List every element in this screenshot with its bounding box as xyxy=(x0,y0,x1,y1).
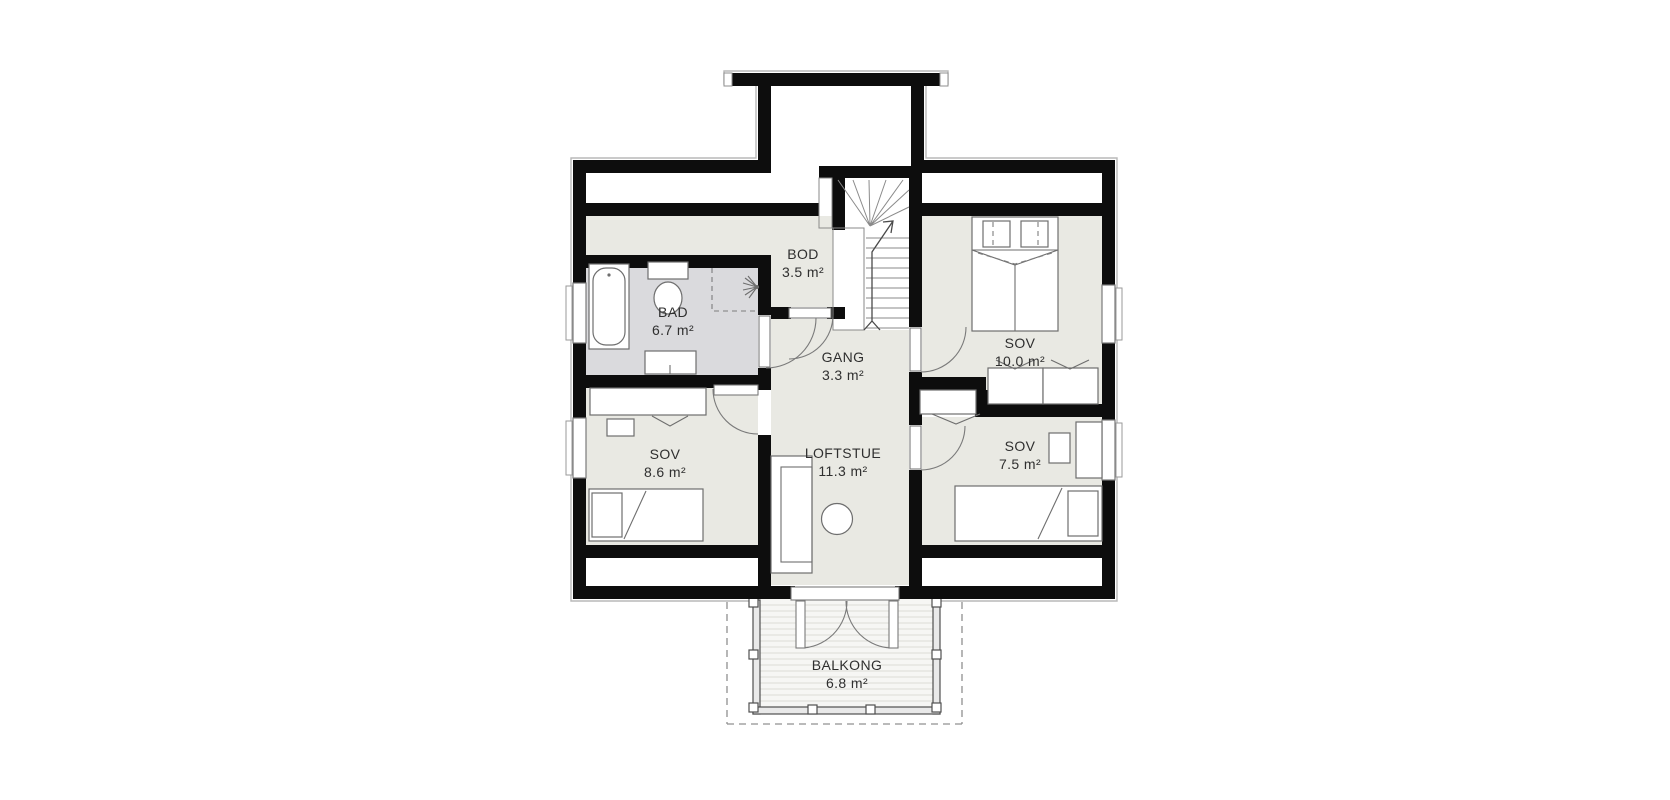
room-area: 11.3 m² xyxy=(818,463,867,479)
balcony-deck xyxy=(760,599,933,709)
round-table xyxy=(822,504,853,535)
wall-dormer-top xyxy=(724,73,948,86)
floor-plan-canvas: BAD 6.7 m² BOD 3.5 m² GANG 3.3 m² SOV 10… xyxy=(0,0,1670,800)
room-area: 6.7 m² xyxy=(652,322,694,338)
wall-bottom-right xyxy=(895,586,1115,599)
room-area: 8.6 m² xyxy=(644,464,686,480)
knee-wall-bottom-left xyxy=(586,545,758,558)
wall-bod-south xyxy=(771,307,791,319)
knee-wall-top-left xyxy=(586,203,819,216)
wall-dormer-right xyxy=(911,86,924,166)
knee-wall-top-right xyxy=(922,203,1102,216)
wall-west-corridor xyxy=(758,368,771,390)
wall-closet-north xyxy=(920,377,986,390)
room-area: 10.0 m² xyxy=(995,353,1045,369)
room-name: SOV xyxy=(1005,335,1036,351)
chair xyxy=(1049,433,1070,463)
window-sov-7-5 xyxy=(1102,420,1115,480)
wall-stair-top xyxy=(819,166,922,178)
wall-left xyxy=(573,343,586,418)
desk xyxy=(1076,422,1102,478)
door-leaf-bod xyxy=(789,308,831,318)
room-area: 6.8 m² xyxy=(826,675,868,691)
room-name: BOD xyxy=(787,246,819,262)
toilet-cistern xyxy=(648,262,688,279)
door-leaf-sov-10 xyxy=(910,328,921,371)
room-area: 3.3 m² xyxy=(822,367,864,383)
wall-right xyxy=(1102,480,1115,599)
bed-pillow xyxy=(983,221,1010,247)
room-name: BAD xyxy=(658,304,688,320)
window-sov-8-6 xyxy=(573,418,586,478)
wardrobe xyxy=(988,368,1043,404)
wall-right xyxy=(1102,160,1115,285)
bathtub-drain xyxy=(607,273,610,276)
wall-end-cap xyxy=(940,73,948,86)
wall-west-corridor xyxy=(758,255,771,315)
wall-stair-left xyxy=(832,178,845,230)
balcony-door-leaf-right xyxy=(889,601,898,648)
room-name: SOV xyxy=(650,446,681,462)
wall-left xyxy=(573,478,586,599)
window-sov-10 xyxy=(1102,285,1115,343)
bed-pillow xyxy=(1068,491,1098,536)
door-leaf-bad xyxy=(759,316,770,367)
knee-wall-bottom-right xyxy=(922,545,1102,558)
door-leaf-sov-8-6 xyxy=(714,385,758,395)
wall-dormer-left xyxy=(758,86,771,173)
drawer-unit xyxy=(607,419,634,436)
door-leaf-sov-7-5 xyxy=(910,426,921,469)
balcony-door-leaf-left xyxy=(796,601,805,648)
room-name: BALKONG xyxy=(812,657,883,673)
room-name: GANG xyxy=(822,349,865,365)
room-name: LOFTSTUE xyxy=(805,445,881,461)
wall-sov10-sov75-divider xyxy=(975,404,1115,417)
floor-eaves-strip xyxy=(586,216,771,255)
wall-closet-step xyxy=(975,390,988,406)
room-area: 7.5 m² xyxy=(999,456,1041,472)
window-bad xyxy=(573,283,586,343)
wall-west-corridor xyxy=(758,435,771,599)
bathtub-basin xyxy=(593,268,625,345)
wall-east-corridor xyxy=(909,470,922,599)
closet xyxy=(920,390,976,414)
bed-pillow xyxy=(1021,221,1048,247)
wall-top-left xyxy=(573,160,771,173)
bed-pillow xyxy=(592,493,622,537)
desk xyxy=(590,388,706,415)
wall-left xyxy=(573,160,586,283)
floor-plan-drawing: BAD 6.7 m² BOD 3.5 m² GANG 3.3 m² SOV 10… xyxy=(0,0,1670,800)
wall-top-right xyxy=(911,160,1115,173)
room-area: 3.5 m² xyxy=(782,264,824,280)
balcony-railing-bottom xyxy=(753,707,940,714)
wall-east-corridor xyxy=(909,166,922,327)
room-name: SOV xyxy=(1005,438,1036,454)
balcony-door-sill xyxy=(791,587,899,600)
wall-end-cap xyxy=(724,73,732,86)
sofa xyxy=(771,456,812,573)
wardrobe xyxy=(1043,368,1098,404)
